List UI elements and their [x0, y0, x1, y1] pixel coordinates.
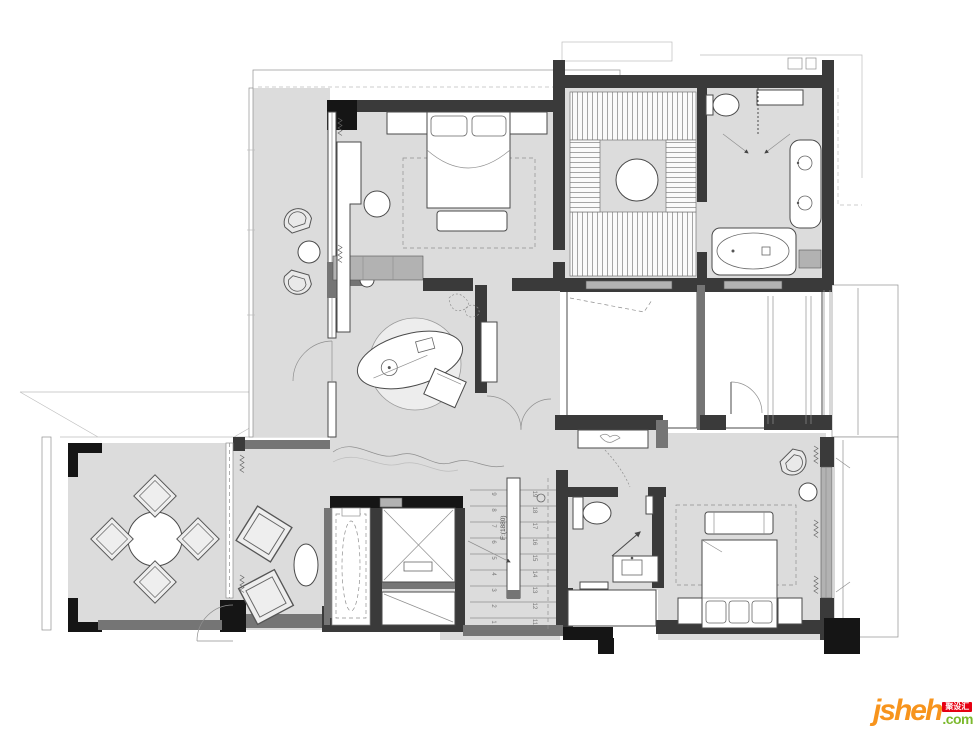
svg-text:14: 14 [531, 571, 537, 578]
terrace-sill [98, 620, 222, 630]
void-room-a [567, 290, 697, 428]
bedroom-west-window-lower [328, 382, 336, 437]
bed-bench [437, 211, 507, 231]
hall-console [578, 430, 648, 448]
desk-stool [364, 191, 390, 217]
threshold [580, 582, 608, 589]
bedroom2-north-wall [700, 415, 726, 430]
shower2-room [568, 590, 656, 626]
pantry-vent [342, 508, 360, 516]
nightstand [678, 598, 702, 624]
bedroom2-bay [834, 437, 898, 637]
stair-numbers-upper: 19 18 17 16 15 14 13 12 11 [531, 491, 537, 626]
toilet2-tank [573, 497, 583, 529]
lounge-oval-table [294, 544, 318, 586]
balcony-side-table [298, 241, 320, 263]
elevator-pit [382, 592, 455, 625]
double-vanity [790, 140, 821, 228]
toilet-bowl [713, 94, 739, 116]
toilet-tank [706, 95, 713, 115]
bathtub [712, 228, 796, 275]
wardrobe-north [570, 92, 696, 140]
lounge-north-pier [233, 437, 245, 451]
bedroom2-east-window [821, 467, 832, 598]
bedroom-closet-divider [553, 60, 565, 250]
wardrobe-west [570, 140, 600, 212]
wall-niche [646, 496, 653, 514]
terrace-round-table [128, 512, 182, 566]
faucet-dot [797, 202, 799, 204]
lounge-north-sill [245, 440, 330, 449]
transom-window [724, 281, 782, 289]
bedroom2-east-pier [820, 437, 834, 467]
pantry-elevator [332, 508, 455, 625]
bottom-wall-stub [598, 638, 614, 654]
nightstand [778, 598, 802, 624]
elevator-east-wall [455, 508, 465, 625]
elevator-sill [382, 582, 455, 589]
roof-drain-box [806, 58, 816, 69]
pantry-elevator-divider [370, 508, 382, 625]
bedroom-south-wall [512, 278, 565, 291]
svg-text:18: 18 [531, 507, 537, 514]
tub-side-ledge [799, 250, 821, 268]
hall-south-band [555, 415, 663, 430]
void-room-b [702, 290, 822, 428]
faucet-dot [797, 162, 799, 164]
upper-ledge-outline [562, 42, 672, 61]
toilet2-bowl [583, 502, 611, 524]
study-bookshelf [481, 322, 497, 382]
east-outer-wall [822, 60, 834, 285]
pantry-west-wall [324, 508, 332, 625]
site-watermark[interactable]: jsheh 聚设汇 .com [873, 696, 973, 726]
walk-in-closet [570, 92, 696, 276]
balcony-outer-rail [249, 88, 253, 437]
svg-text:11: 11 [531, 619, 537, 626]
svg-text:17: 17 [531, 523, 537, 530]
closet-ottoman [616, 159, 658, 201]
floorplan-canvas: F:(1880) 19 18 17 16 15 14 13 12 11 9 8 … [0, 0, 979, 730]
balcony-floor [253, 88, 330, 437]
svg-text:15: 15 [531, 555, 537, 562]
pantry-room [332, 508, 370, 625]
svg-text:19: 19 [531, 491, 537, 498]
closet-bath-north-wall [560, 75, 832, 88]
bed2-bench [705, 512, 773, 534]
terrace-corner-column [68, 443, 78, 477]
master-bed [427, 112, 510, 208]
svg-text:16: 16 [531, 539, 537, 546]
terrace-outer-ledge [42, 437, 51, 630]
stair-stringer-wall [507, 478, 520, 598]
wardrobe-south [570, 212, 696, 276]
logo-tld: .com [942, 712, 973, 726]
roof-hip-left [20, 392, 98, 437]
stringer-cap [507, 590, 520, 599]
terrace-corner-column [68, 622, 102, 632]
hall-pier [656, 420, 668, 448]
tr-ledge-dashed [838, 88, 862, 205]
room-ab-divider [697, 285, 705, 430]
tub-drain [732, 250, 735, 253]
stair-annotation: F:(1880) [500, 515, 507, 540]
logo-right-stack: 聚设汇 .com [942, 702, 973, 726]
bath-shelf [757, 90, 803, 105]
right-strip [832, 285, 898, 437]
wall-inset [380, 498, 402, 507]
bathroom2-north-wall [560, 487, 618, 497]
bedroom-south-wall [423, 278, 473, 291]
floorplan-drawing: F:(1880) 19 18 17 16 15 14 13 12 11 9 8 … [0, 0, 979, 730]
bedroom2-north-wall [764, 415, 832, 430]
logo-wordmark[interactable]: jsheh [873, 696, 941, 726]
svg-text:12: 12 [531, 603, 537, 610]
bed2 [702, 540, 777, 628]
bedroom-north-wall [327, 100, 563, 112]
bottom-right-column [824, 618, 860, 654]
wardrobe-east [666, 140, 696, 212]
roof-drain-box [788, 58, 802, 69]
transom-window [586, 281, 672, 289]
bedroom2-side-table [799, 483, 817, 501]
svg-text:13: 13 [531, 587, 537, 594]
faucet-dot [631, 557, 634, 560]
